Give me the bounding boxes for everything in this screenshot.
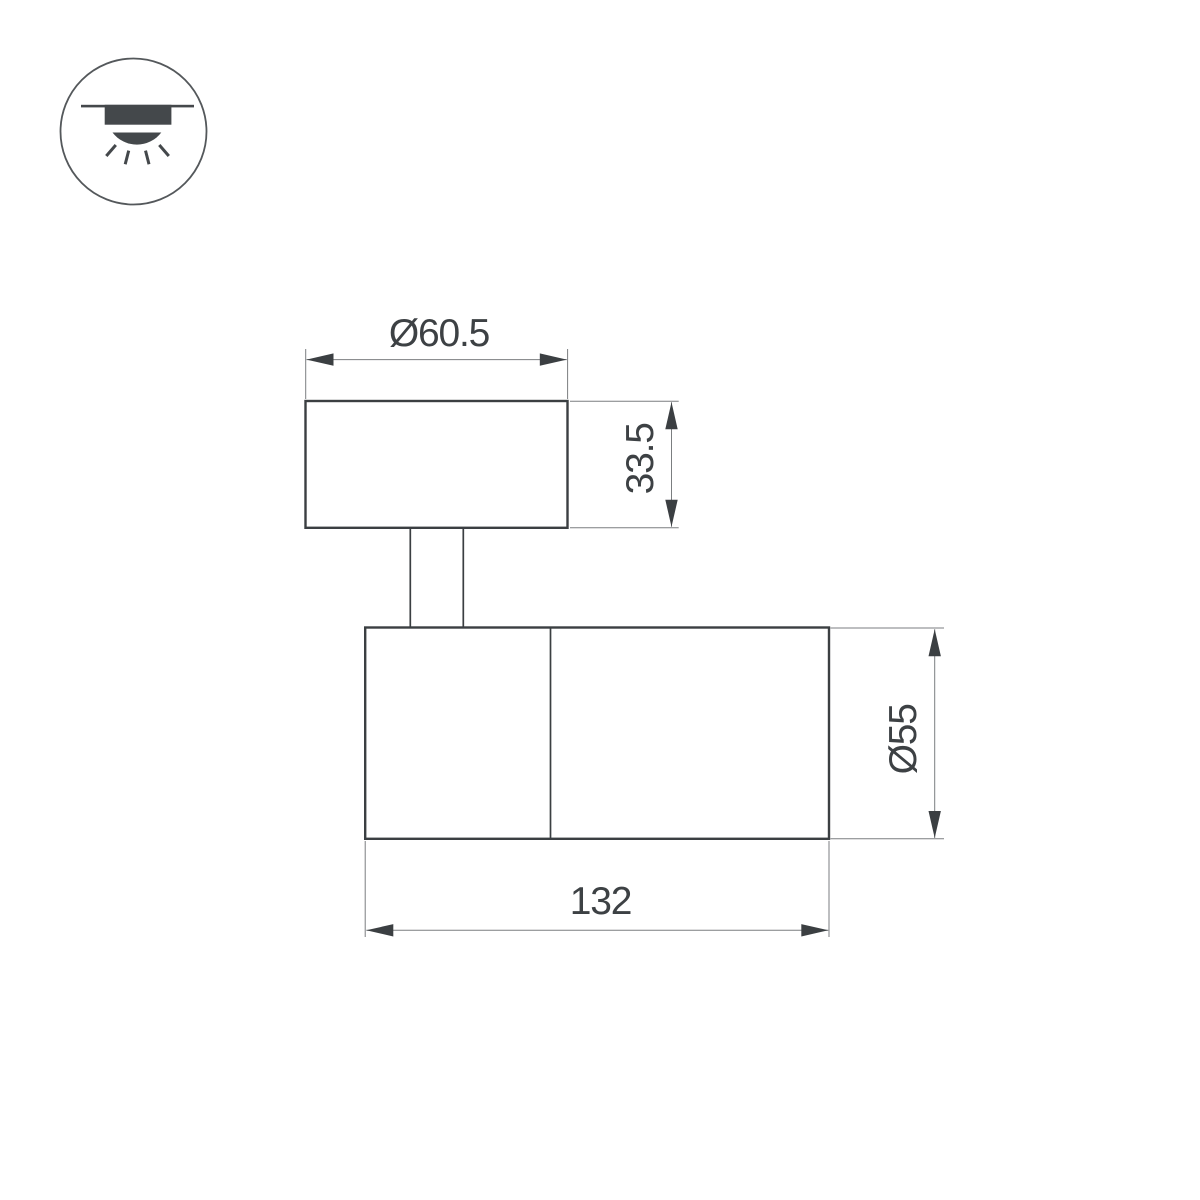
svg-text:132: 132 [570,880,631,923]
svg-text:Ø60.5: Ø60.5 [389,312,490,355]
svg-text:33.5: 33.5 [619,423,662,495]
svg-text:Ø55: Ø55 [882,704,925,775]
